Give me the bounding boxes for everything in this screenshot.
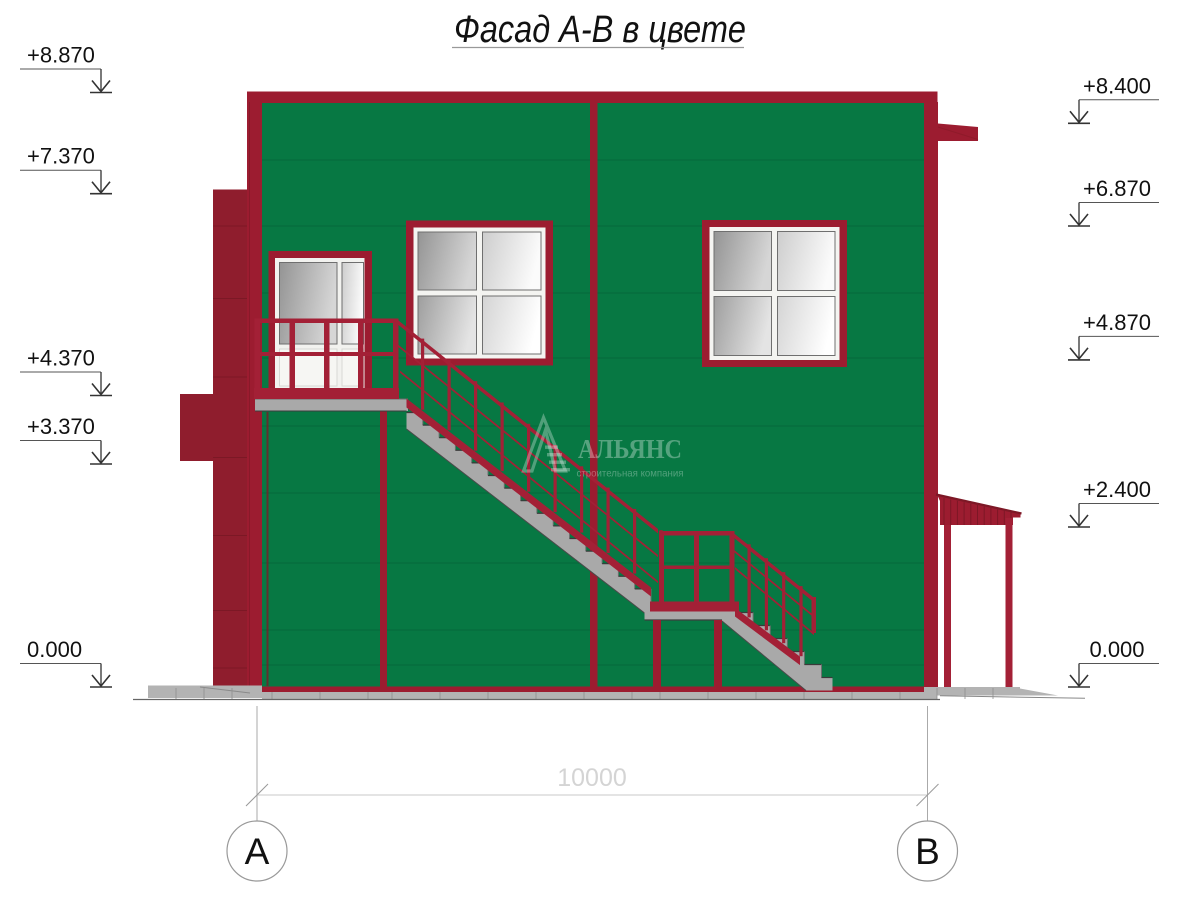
svg-text:B: B: [915, 831, 940, 872]
svg-text:+4.870: +4.870: [1083, 310, 1151, 335]
svg-text:Фасад А-В в цвете: Фасад А-В в цвете: [454, 9, 746, 51]
svg-text:+7.370: +7.370: [27, 144, 95, 169]
svg-text:+8.870: +8.870: [27, 43, 95, 68]
svg-text:+3.370: +3.370: [27, 414, 95, 439]
svg-text:строительная компания: строительная компания: [577, 468, 684, 480]
svg-text:0.000: 0.000: [27, 637, 82, 662]
svg-text:A: A: [245, 831, 270, 872]
svg-text:+6.870: +6.870: [1083, 176, 1151, 201]
svg-text:10000: 10000: [557, 764, 627, 792]
svg-text:+4.370: +4.370: [27, 346, 95, 371]
svg-text:+8.400: +8.400: [1083, 73, 1151, 98]
svg-text:+2.400: +2.400: [1083, 477, 1151, 502]
svg-text:АЛЬЯНС: АЛЬЯНС: [578, 434, 682, 464]
svg-text:0.000: 0.000: [1089, 637, 1144, 662]
